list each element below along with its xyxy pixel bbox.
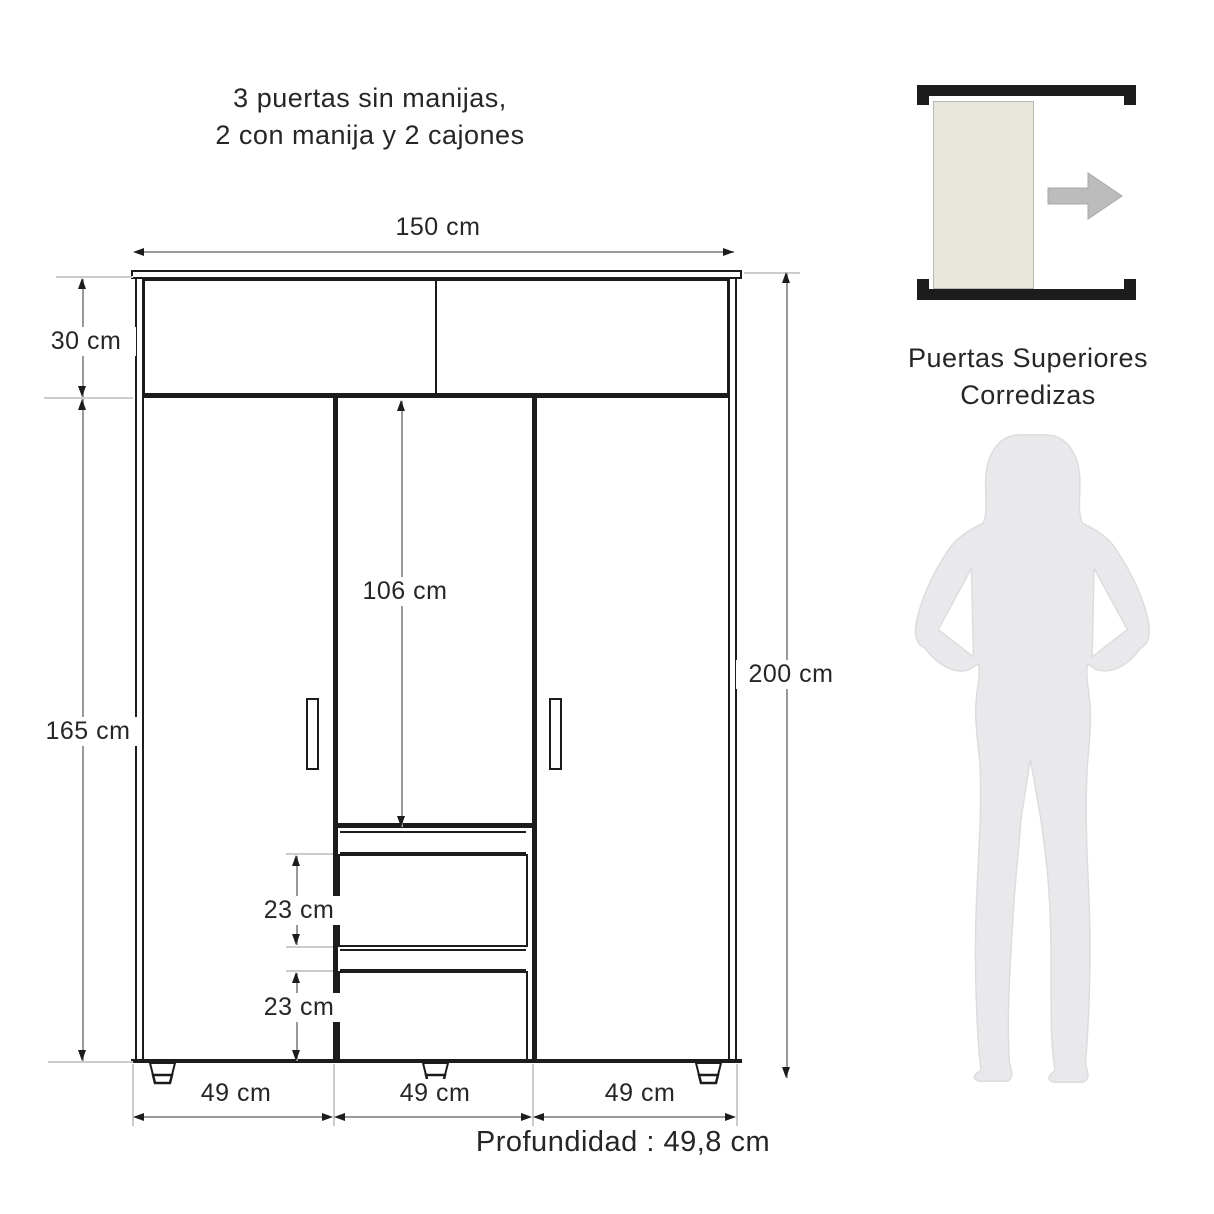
dim-arrow-left-door-r (322, 1113, 333, 1121)
dim-arrow-width-left (133, 248, 144, 256)
wardrobe-foot-left (148, 1062, 178, 1087)
dim-arrow-drawer-lower-down (292, 1050, 300, 1061)
drawing-title-line1: 3 puertas sin manijas, (130, 80, 610, 117)
drawer-top-rail (340, 831, 526, 854)
drawer-front-upper (338, 854, 528, 947)
dim-line-left-door (137, 1116, 327, 1118)
sliding-doors-legend-line2: Corredizas (872, 377, 1184, 414)
dim-arrow-total-height-down (782, 1067, 790, 1078)
drawing-title-line2: 2 con manija y 2 cajones (130, 117, 610, 154)
slide-frame-bottom-tab-right (1124, 279, 1136, 300)
human-scale-silhouette (886, 430, 1152, 1092)
right-door-handle (549, 698, 562, 770)
center-door (333, 398, 537, 828)
dim-arrow-right-door-l (533, 1113, 544, 1121)
slide-frame-bottom-bar (917, 289, 1136, 300)
dim-label-lower-section: 165 cm (36, 717, 140, 746)
ext-line-lower-section-bottom (48, 1061, 133, 1063)
sliding-door-panel (933, 101, 1034, 289)
dim-arrow-drawer-upper-down (292, 934, 300, 945)
dim-arrow-right-door-r (725, 1113, 736, 1121)
dim-arrow-drawer-lower-up (292, 972, 300, 983)
upper-sliding-doors-section (143, 279, 729, 398)
dim-line-center-door-width (337, 1116, 528, 1118)
dim-arrow-total-height-up (782, 272, 790, 283)
technical-drawing-canvas: 3 puertas sin manijas, 2 con manija y 2 … (0, 0, 1214, 1214)
dim-arrow-top-section-down (78, 386, 86, 397)
dim-arrow-center-door-l (334, 1113, 345, 1121)
dim-arrow-center-door-down (397, 816, 405, 827)
ext-line-drawer-upper-bottom (286, 946, 333, 948)
dim-arrow-width-right (723, 248, 734, 256)
ext-line-top-section-lower (44, 397, 133, 399)
slide-frame-top-tab-right (1124, 85, 1136, 105)
sliding-doors-legend-line1: Puertas Superiores (872, 340, 1184, 377)
wardrobe-top-board (131, 270, 742, 279)
dim-arrow-top-section-up (78, 278, 86, 289)
slide-frame-bottom-tab-left (917, 279, 929, 300)
dim-label-total-height: 200 cm (736, 660, 846, 689)
dim-label-drawer-upper: 23 cm (248, 896, 350, 925)
dim-label-right-door: 49 cm (588, 1079, 692, 1108)
dim-arrow-lower-section-up (78, 399, 86, 410)
slide-frame-top-bar (917, 85, 1136, 96)
depth-note: Profundidad : 49,8 cm (458, 1126, 788, 1159)
drawer-column-right-edge (532, 828, 537, 1062)
sliding-doors-divider (435, 281, 437, 393)
sliding-doors-legend: Puertas Superiores Corredizas (872, 340, 1184, 414)
drawing-title: 3 puertas sin manijas, 2 con manija y 2 … (130, 80, 610, 154)
slide-direction-arrow-icon (1046, 166, 1126, 226)
slide-frame-top-tab-left (917, 85, 929, 105)
dim-label-left-door: 49 cm (186, 1079, 286, 1108)
dim-arrow-center-door-up (397, 400, 405, 411)
dim-label-width: 150 cm (340, 213, 536, 242)
dim-line-width (137, 251, 734, 253)
dim-arrow-left-door-l (133, 1113, 144, 1121)
drawer-front-lower (338, 971, 528, 1061)
ext-line-doors-4 (736, 1064, 738, 1126)
dim-line-center-door (401, 401, 403, 827)
dim-label-center-door: 106 cm (350, 577, 460, 606)
left-door-handle (306, 698, 319, 770)
dim-label-drawer-lower: 23 cm (248, 993, 350, 1022)
ext-line-top-section-upper (56, 276, 133, 278)
dim-line-right-door (536, 1116, 732, 1118)
drawer-middle-rail (340, 949, 526, 971)
dim-arrow-drawer-upper-up (292, 855, 300, 866)
dim-label-center-door-width: 49 cm (385, 1079, 485, 1108)
dim-arrow-lower-section-down (78, 1050, 86, 1061)
dim-label-top-section: 30 cm (36, 327, 136, 356)
ext-line-total-height-top (744, 272, 800, 274)
wardrobe-foot-right (694, 1062, 724, 1087)
dim-arrow-center-door-r (521, 1113, 532, 1121)
